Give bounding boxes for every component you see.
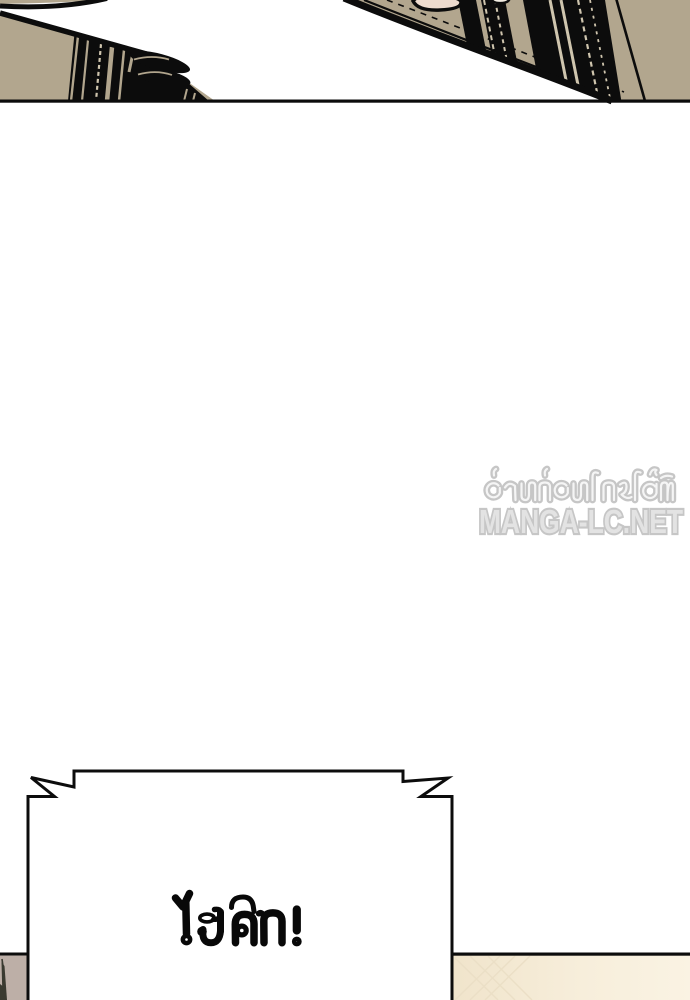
svg-text:MANGA-LC.NET: MANGA-LC.NET bbox=[479, 503, 683, 540]
